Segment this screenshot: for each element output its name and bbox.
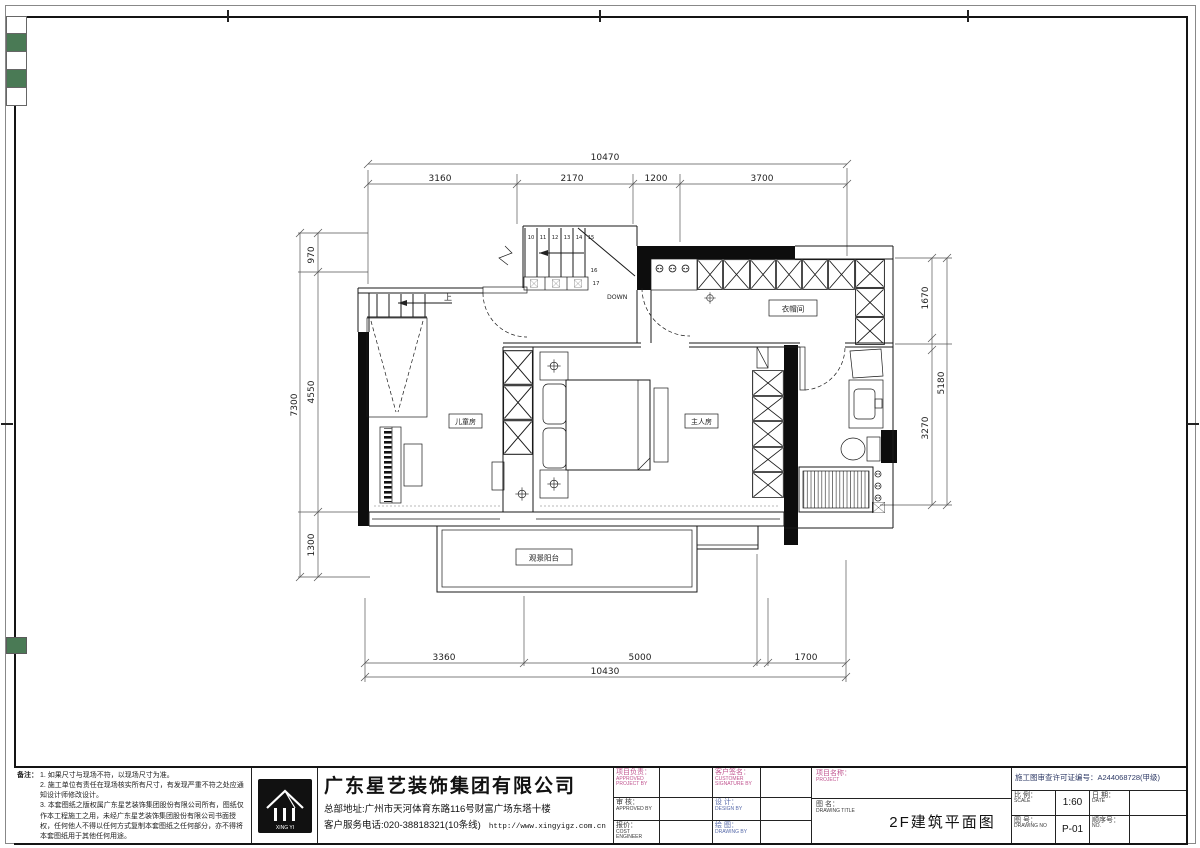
label-customer: 客户签名： CUSTOMER SIGNATURE BY [713, 768, 761, 798]
balcony-outline [437, 526, 697, 592]
signoff-cell [6, 88, 27, 106]
stair-step-number: 13 [564, 235, 571, 241]
valve-icon [875, 495, 881, 501]
stair-up-label: 上 [444, 293, 452, 302]
dim-left-seg: 4550 [307, 380, 317, 403]
toilet-cistern [867, 437, 880, 461]
bathroom-fixtures [784, 347, 893, 528]
signoff-strip [6, 16, 27, 106]
stair-step-number: 12 [552, 235, 559, 241]
company-address: 总部地址:广州市天河体育东路116号财富广场东塔十楼 [324, 801, 607, 815]
dim-bottom-seg: 3360 [433, 653, 456, 663]
date-value [1130, 791, 1186, 815]
drawing-no-label: 图 号： DRAWING No [1012, 816, 1056, 843]
room-label-master: 主人房 [691, 417, 712, 426]
valve-icon [875, 471, 881, 477]
label-check: 审 核： APPROVED BY [614, 798, 660, 821]
centering-tick [1187, 423, 1199, 425]
logo-house-icon: XING YI [258, 779, 312, 833]
notes-panel: 备注： 1. 如果尺寸与现场不符，以现场尺寸为准。 2. 施工单位有责任在现场核… [14, 768, 252, 843]
company-phone-line: 客户服务电话:020-38818321(10条线)http://www.xing… [324, 817, 607, 831]
centering-tick [227, 10, 229, 22]
piano-bench [404, 444, 422, 486]
sink [854, 389, 875, 419]
signoff-cell-green [6, 34, 27, 52]
dim-right-seg: 1670 [921, 286, 931, 309]
dim-right-total: 5180 [937, 371, 947, 394]
room-label-children: 儿童房 [455, 417, 476, 426]
dim-right-seg: 3270 [921, 416, 931, 439]
stair-step-number: 16 [591, 268, 598, 274]
drawing-no-value: P-01 [1056, 816, 1090, 843]
company-info: 广东星艺装饰集团有限公司 总部地址:广州市天河体育东路116号财富广场东塔十楼 … [318, 768, 614, 843]
signoff-cell-green [6, 70, 27, 88]
room-label-closet: 衣帽间 [782, 304, 805, 314]
plan-outline [358, 226, 893, 592]
sign-cell [761, 798, 812, 821]
room-label-balcony: 观景阳台 [529, 553, 559, 563]
dim-left-total: 7300 [290, 393, 300, 416]
dim-top-total: 10470 [591, 153, 620, 163]
note-item: 2. 施工单位有责任在现场核实所有尺寸，有发现严重不符之处应通知设计师修改设计。 [40, 781, 247, 801]
company-phone: 客户服务电话:020-38818321(10条线) [324, 820, 481, 831]
centering-tick [599, 10, 601, 22]
number-seq-row: 图 号： DRAWING No P-01 顺序号： NO. [1012, 816, 1186, 843]
downlight-icon [669, 265, 676, 272]
sign-cell [761, 768, 812, 798]
label-project-lead: 项目负责： APPROVED PROJECT BY [614, 768, 660, 798]
stair-step-number: 14 [576, 235, 583, 241]
project-panel: 项目名称： PROJECT 图 名： DRAWING TITLE 2F建筑平面图 [812, 768, 1012, 843]
centering-tick [1, 423, 13, 425]
stair-step-number: 11 [540, 235, 547, 241]
company-logo: XING YI [252, 768, 318, 843]
license-cell: 施工图审查许可证编号：A244068728(甲级) [1012, 768, 1186, 791]
dim-top-seg: 2170 [561, 174, 584, 184]
signoff-cell [6, 16, 27, 34]
label-quote: 报价： Cost Engineer [614, 821, 660, 843]
note-item: 1. 如果尺寸与现场不符，以现场尺寸为准。 [40, 771, 247, 781]
sign-cell [660, 798, 713, 821]
dim-top-seg: 1200 [645, 174, 668, 184]
sign-cell [660, 768, 713, 798]
valve-icon [875, 483, 881, 489]
dimension-lines [296, 160, 952, 682]
floor-plan: 10470 3160 2170 1200 3700 3360 5000 1700… [280, 140, 970, 700]
drawing-sheet: 10470 3160 2170 1200 3700 3360 5000 1700… [0, 0, 1200, 848]
stair-step-number: 10 [528, 235, 535, 241]
notes-label: 备注： [17, 771, 38, 781]
stair-step-number: 17 [593, 281, 600, 287]
green-marker [6, 637, 27, 654]
sign-cell [660, 821, 713, 843]
drawing-title-value: 2F建筑平面图 [878, 801, 1007, 841]
label-draw: 绘 图： DRAWING BY [713, 821, 761, 843]
dim-bottom-total: 10430 [591, 667, 620, 677]
signature-grid: 项目负责： APPROVED PROJECT BY 客户签名： CUSTOMER… [614, 768, 812, 843]
dim-left-seg: 970 [307, 246, 317, 263]
seq-label: 顺序号： NO. [1090, 816, 1130, 843]
note-item: 3. 本套图纸之版权属广东星艺装饰集团股份有限公司所有，图纸仅作本工程施工之用，… [40, 801, 247, 842]
project-name-cell: 项目名称： PROJECT [812, 768, 1011, 799]
scale-label: 比 例： SCALE [1012, 791, 1056, 815]
bedside-lamp-icon [547, 477, 560, 490]
dim-top-seg: 3160 [429, 174, 452, 184]
company-name: 广东星艺装饰集团有限公司 [324, 771, 607, 798]
downlight-icon [656, 265, 663, 272]
dim-top-seg: 3700 [751, 174, 774, 184]
logo-text: XING YI [275, 825, 293, 831]
dim-bottom-seg: 5000 [629, 653, 652, 663]
ceiling-lamp-icon [704, 292, 715, 303]
dim-left-seg: 1300 [307, 533, 317, 556]
centering-tick [967, 10, 969, 22]
seq-value [1130, 816, 1186, 843]
ceiling-lamp-icon [515, 487, 528, 500]
signoff-cell [6, 52, 27, 70]
sign-cell [761, 821, 812, 843]
downlight-icon [682, 265, 689, 272]
drawing-title-cell: 图 名： DRAWING TITLE 2F建筑平面图 [812, 799, 1011, 843]
date-label: 日 期： DATE [1090, 791, 1130, 815]
drawing-meta-panel: 施工图审查许可证编号：A244068728(甲级) 比 例： SCALE 1:6… [1012, 768, 1186, 843]
scale-date-row: 比 例： SCALE 1:60 日 期： DATE [1012, 791, 1186, 816]
stair-step-number: 15 [588, 235, 595, 241]
stair-down-label: DOWN [607, 294, 628, 301]
toilet [841, 438, 865, 460]
dim-bottom-seg: 1700 [795, 653, 818, 663]
company-url: http://www.xingyigz.com.cn [489, 823, 606, 831]
bed [540, 352, 668, 498]
scale-value: 1:60 [1056, 791, 1090, 815]
bedside-lamp-icon [547, 359, 560, 372]
label-design: 设 计： DESIGN BY [713, 798, 761, 821]
title-block: 备注： 1. 如果尺寸与现场不符，以现场尺寸为准。 2. 施工单位有责任在现场核… [14, 766, 1186, 843]
